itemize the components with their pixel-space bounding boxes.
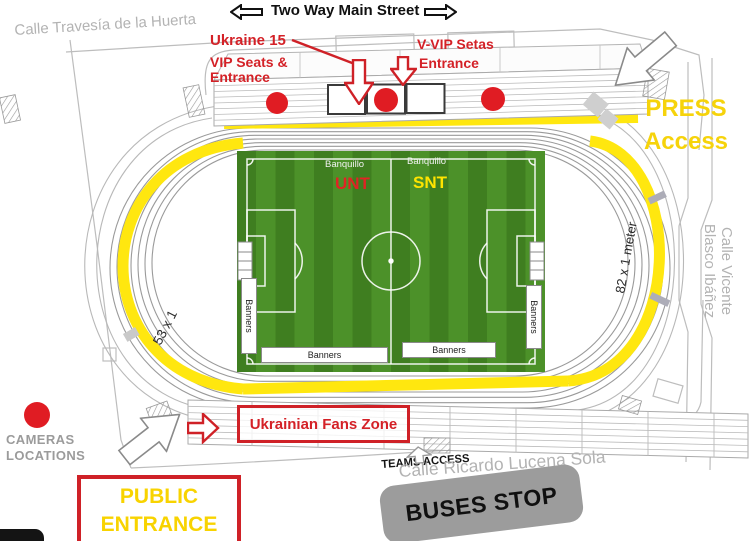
banner-label: Banners: [529, 300, 539, 334]
public-entrance-box: PUBLIC ENTRANCE: [77, 475, 241, 541]
main-street-label: Two Way Main Street: [271, 2, 419, 19]
stadium-map: Banquillo Banquillo UNT SNT Banners Bann…: [0, 0, 750, 541]
public-entrance-line2: ENTRANCE: [101, 511, 218, 539]
banner-strip-bottom-left: Banners: [261, 347, 388, 363]
banner-strip-left: Banners: [241, 278, 257, 354]
banner-label: Banners: [432, 345, 466, 355]
press-access-label: PRESS Access: [630, 92, 742, 158]
goal-right: [530, 242, 544, 280]
buses-stop-label: BUSES STOP: [404, 481, 559, 526]
banner-label: Banners: [244, 299, 254, 333]
corner-black-bar: [0, 529, 44, 541]
banner-strip-right: Banners: [526, 285, 542, 349]
vvip-label-line2: Entrance: [419, 55, 479, 71]
fans-zone-box: Ukrainian Fans Zone: [237, 405, 410, 443]
banquillo-label-right: Banquillo: [407, 156, 446, 167]
cameras-legend-dot: [24, 402, 50, 428]
public-entrance-line1: PUBLIC: [120, 483, 198, 511]
football-pitch: Banquillo Banquillo UNT SNT Banners Bann…: [237, 151, 545, 372]
team-label-unt: UNT: [335, 174, 370, 194]
press-access-line2: Access: [630, 125, 742, 158]
street-vicente-label: Calle Vicente Blasco Ibáñez: [701, 211, 735, 331]
teams-access-arrow-icon: [405, 445, 433, 466]
cameras-legend-label: CAMERAS LOCATIONS: [6, 432, 85, 464]
street-vicente-line2: Blasco Ibáñez: [701, 211, 718, 331]
vip-entrance-arrow-icon: [344, 59, 374, 105]
vvip-entrance-arrow-icon: [390, 56, 417, 86]
pitch-markings: [237, 151, 545, 372]
vip-seats-label-line1: VIP Seats &: [210, 54, 288, 70]
banner-label: Banners: [308, 350, 342, 360]
press-access-line1: PRESS: [630, 92, 742, 125]
left-arrow-icon: [230, 4, 263, 20]
goal-left: [238, 242, 252, 280]
banquillo-label-left: Banquillo: [325, 159, 364, 170]
right-arrow-icon: [424, 4, 457, 20]
vvip-label-line1: V-VIP Setas: [417, 36, 494, 52]
cameras-legend-line1: CAMERAS: [6, 432, 85, 448]
fans-zone-label: Ukrainian Fans Zone: [250, 416, 398, 433]
cameras-legend-line2: LOCATIONS: [6, 448, 85, 464]
street-vicente-line1: Calle Vicente: [718, 211, 735, 331]
team-label-snt: SNT: [413, 173, 447, 193]
banner-strip-bottom-right: Banners: [402, 342, 496, 358]
ukraine15-label: Ukraine 15: [210, 32, 286, 49]
vip-seats-label-line2: Entrance: [210, 69, 270, 85]
